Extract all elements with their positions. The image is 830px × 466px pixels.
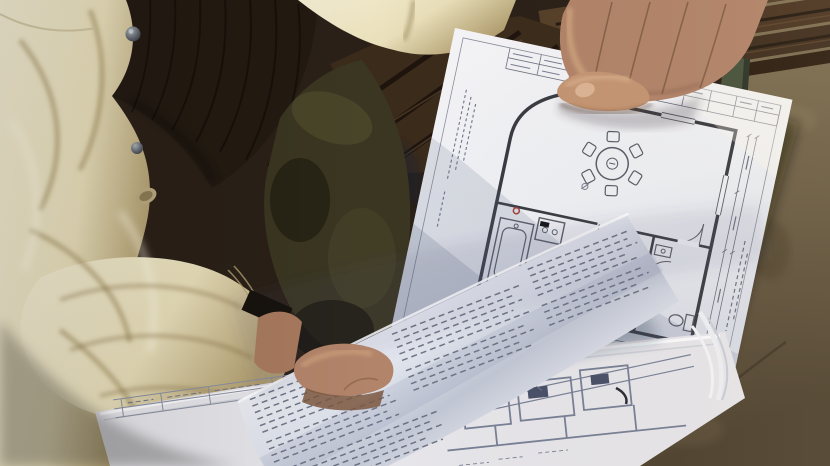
photo-scene	[0, 0, 830, 466]
